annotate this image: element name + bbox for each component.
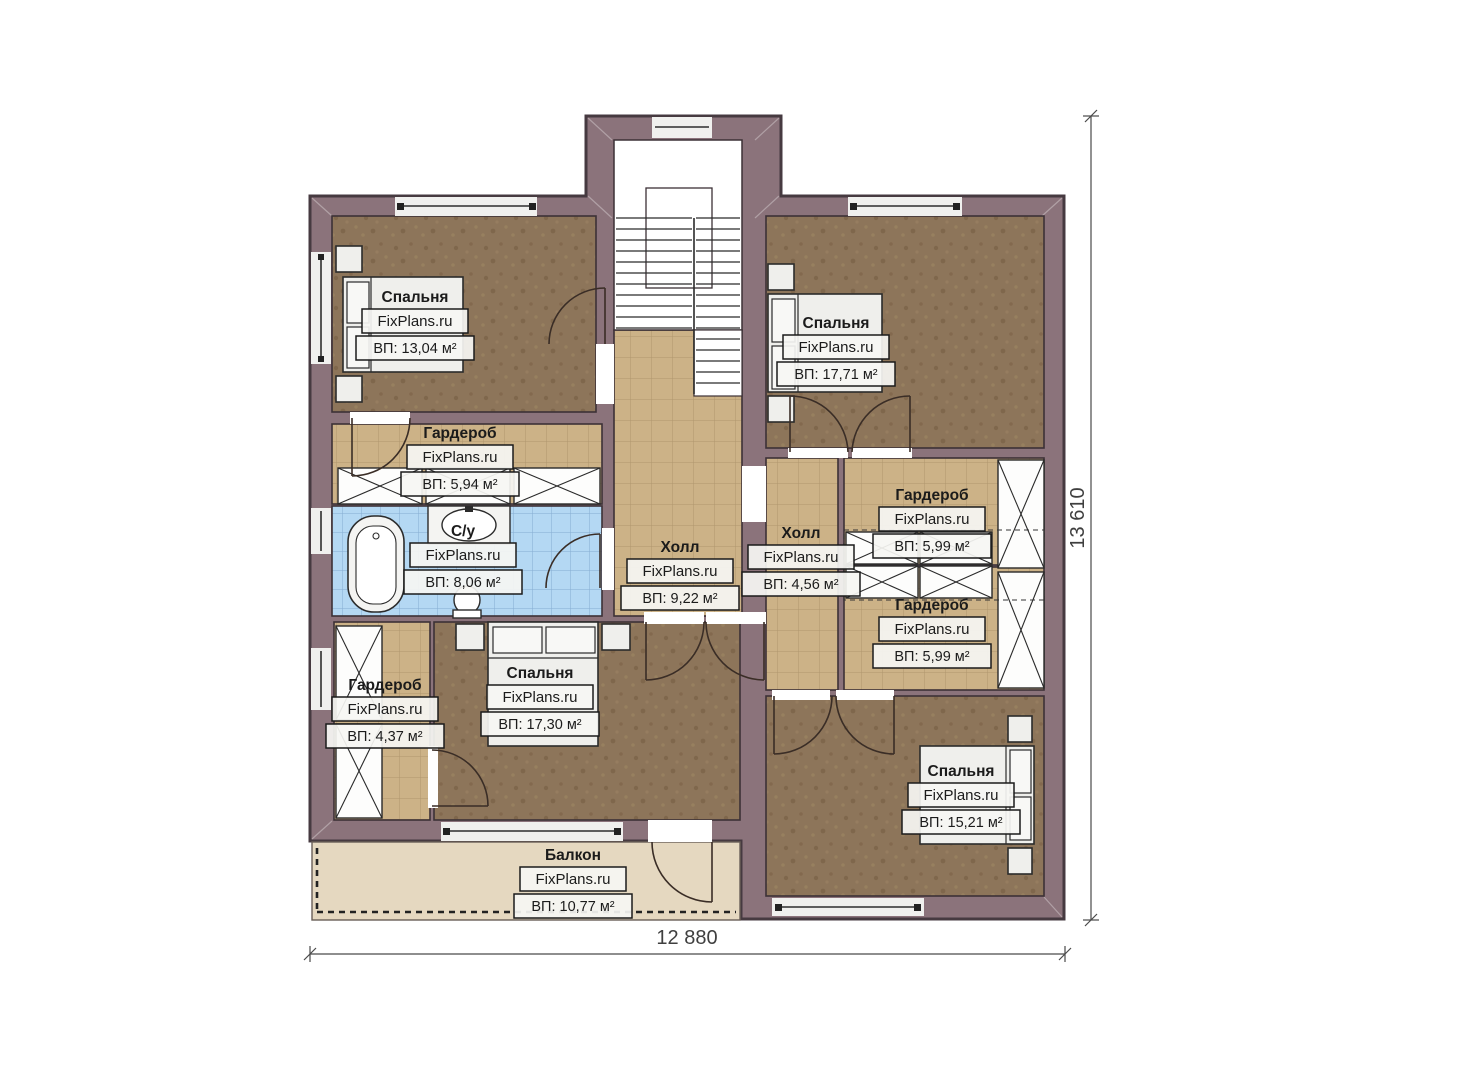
room-area: ВП: 5,99 м²: [894, 539, 969, 555]
room-name: Гардероб: [423, 425, 496, 442]
dimension-right: 13 610: [1067, 110, 1099, 926]
nightstand: [602, 624, 630, 650]
closet: [514, 468, 600, 504]
brand-label: FixPlans.ru: [377, 313, 452, 330]
room-area: ВП: 5,94 м²: [422, 477, 497, 493]
brand-label: FixPlans.ru: [894, 511, 969, 528]
room-area: ВП: 17,71 м²: [794, 367, 877, 383]
window: [772, 898, 924, 916]
room-name: Балкон: [545, 847, 601, 864]
bathtub: [348, 516, 404, 612]
dimension-height-label: 13 610: [1067, 487, 1089, 548]
nightstand: [1008, 848, 1032, 874]
room-name: Гардероб: [895, 597, 968, 614]
floor-plan-page: Спальня FixPlans.ru ВП: 13,04 м² Гардеро…: [0, 0, 1473, 1080]
room-area: ВП: 17,30 м²: [498, 717, 581, 733]
window: [441, 822, 623, 841]
door-opening: [602, 528, 614, 590]
door-opening: [836, 690, 894, 700]
room-area: ВП: 13,04 м²: [373, 341, 456, 357]
dimension-bottom: 12 880: [304, 927, 1071, 962]
brand-label: FixPlans.ru: [535, 871, 610, 888]
dimension-width-label: 12 880: [656, 927, 717, 949]
door-opening: [852, 448, 912, 458]
nightstand: [336, 376, 362, 402]
room-name: Спальня: [803, 315, 870, 332]
room-area: ВП: 9,22 м²: [642, 591, 717, 607]
room-area: ВП: 15,21 м²: [919, 815, 1002, 831]
room-area: ВП: 4,56 м²: [763, 577, 838, 593]
room-area: ВП: 5,99 м²: [894, 649, 969, 665]
room-name: Гардероб: [895, 487, 968, 504]
brand-label: FixPlans.ru: [425, 547, 500, 564]
room-name: С/у: [451, 523, 476, 540]
door-opening: [596, 344, 614, 404]
brand-label: FixPlans.ru: [347, 701, 422, 718]
room-area: ВП: 4,37 м²: [347, 729, 422, 745]
door-opening: [428, 746, 438, 808]
window: [311, 648, 331, 710]
pillow: [546, 627, 595, 653]
floor-plan-drawing: Спальня FixPlans.ru ВП: 13,04 м² Гардеро…: [0, 0, 1473, 1080]
brand-label: FixPlans.ru: [502, 689, 577, 706]
room-name: Спальня: [928, 763, 995, 780]
room-area: ВП: 10,77 м²: [531, 899, 614, 915]
room-name: Гардероб: [348, 677, 421, 694]
brand-label: FixPlans.ru: [642, 563, 717, 580]
room-area: ВП: 8,06 м²: [425, 575, 500, 591]
brand-label: FixPlans.ru: [923, 787, 998, 804]
window: [311, 252, 331, 364]
nightstand: [336, 246, 362, 272]
window: [652, 117, 712, 138]
window: [395, 197, 537, 216]
pillow: [493, 627, 542, 653]
closet: [998, 572, 1044, 688]
nightstand: [768, 264, 794, 290]
room-name: Холл: [782, 525, 821, 542]
door-opening: [788, 448, 848, 458]
room-name: Спальня: [507, 665, 574, 682]
closet: [920, 566, 992, 598]
window: [848, 197, 962, 216]
door-opening: [350, 412, 410, 424]
passage-opening: [742, 466, 766, 522]
brand-label: FixPlans.ru: [763, 549, 838, 566]
brand-label: FixPlans.ru: [894, 621, 969, 638]
door-opening: [644, 612, 704, 624]
closet: [998, 460, 1044, 568]
nightstand: [1008, 716, 1032, 742]
window: [311, 508, 331, 554]
door-opening: [706, 612, 766, 624]
brand-label: FixPlans.ru: [798, 339, 873, 356]
door-opening: [648, 820, 712, 842]
door-opening: [772, 690, 830, 700]
brand-label: FixPlans.ru: [422, 449, 497, 466]
room-name: Холл: [661, 539, 700, 556]
room-name: Спальня: [382, 289, 449, 306]
stair-flight-right-floor: [694, 330, 742, 396]
stair-landing: [614, 140, 742, 330]
nightstand: [456, 624, 484, 650]
